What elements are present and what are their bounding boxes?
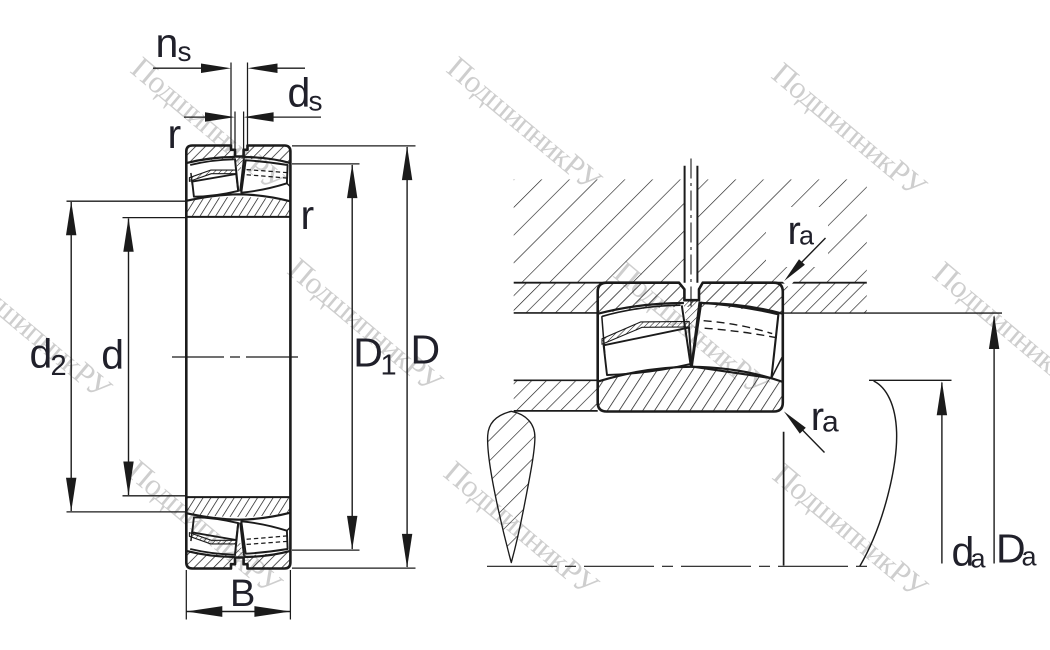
svg-text:d: d [30, 331, 53, 377]
svg-text:ПодшипникРУ: ПодшипникРУ [125, 50, 293, 199]
svg-text:s: s [309, 86, 323, 117]
svg-text:1: 1 [381, 350, 397, 382]
svg-text:r: r [168, 111, 182, 157]
svg-text:n: n [156, 20, 179, 66]
svg-text:B: B [230, 573, 255, 615]
svg-text:d: d [288, 70, 311, 116]
svg-text:d: d [101, 332, 124, 378]
svg-text:a: a [1022, 542, 1038, 572]
svg-text:2: 2 [51, 350, 67, 382]
svg-text:s: s [178, 36, 192, 67]
svg-text:ПодшипникРУ: ПодшипникРУ [441, 50, 609, 199]
svg-text:r: r [301, 192, 315, 238]
svg-text:a: a [822, 406, 839, 439]
svg-text:ПодшипникРУ: ПодшипникРУ [767, 457, 935, 606]
svg-text:ПодшипникРУ: ПодшипникРУ [121, 453, 289, 602]
svg-text:ПодшипникРУ: ПодшипникРУ [927, 255, 1050, 404]
svg-text:a: a [799, 221, 815, 251]
svg-text:D: D [353, 330, 383, 376]
svg-text:D: D [411, 327, 441, 373]
svg-text:a: a [971, 544, 987, 574]
